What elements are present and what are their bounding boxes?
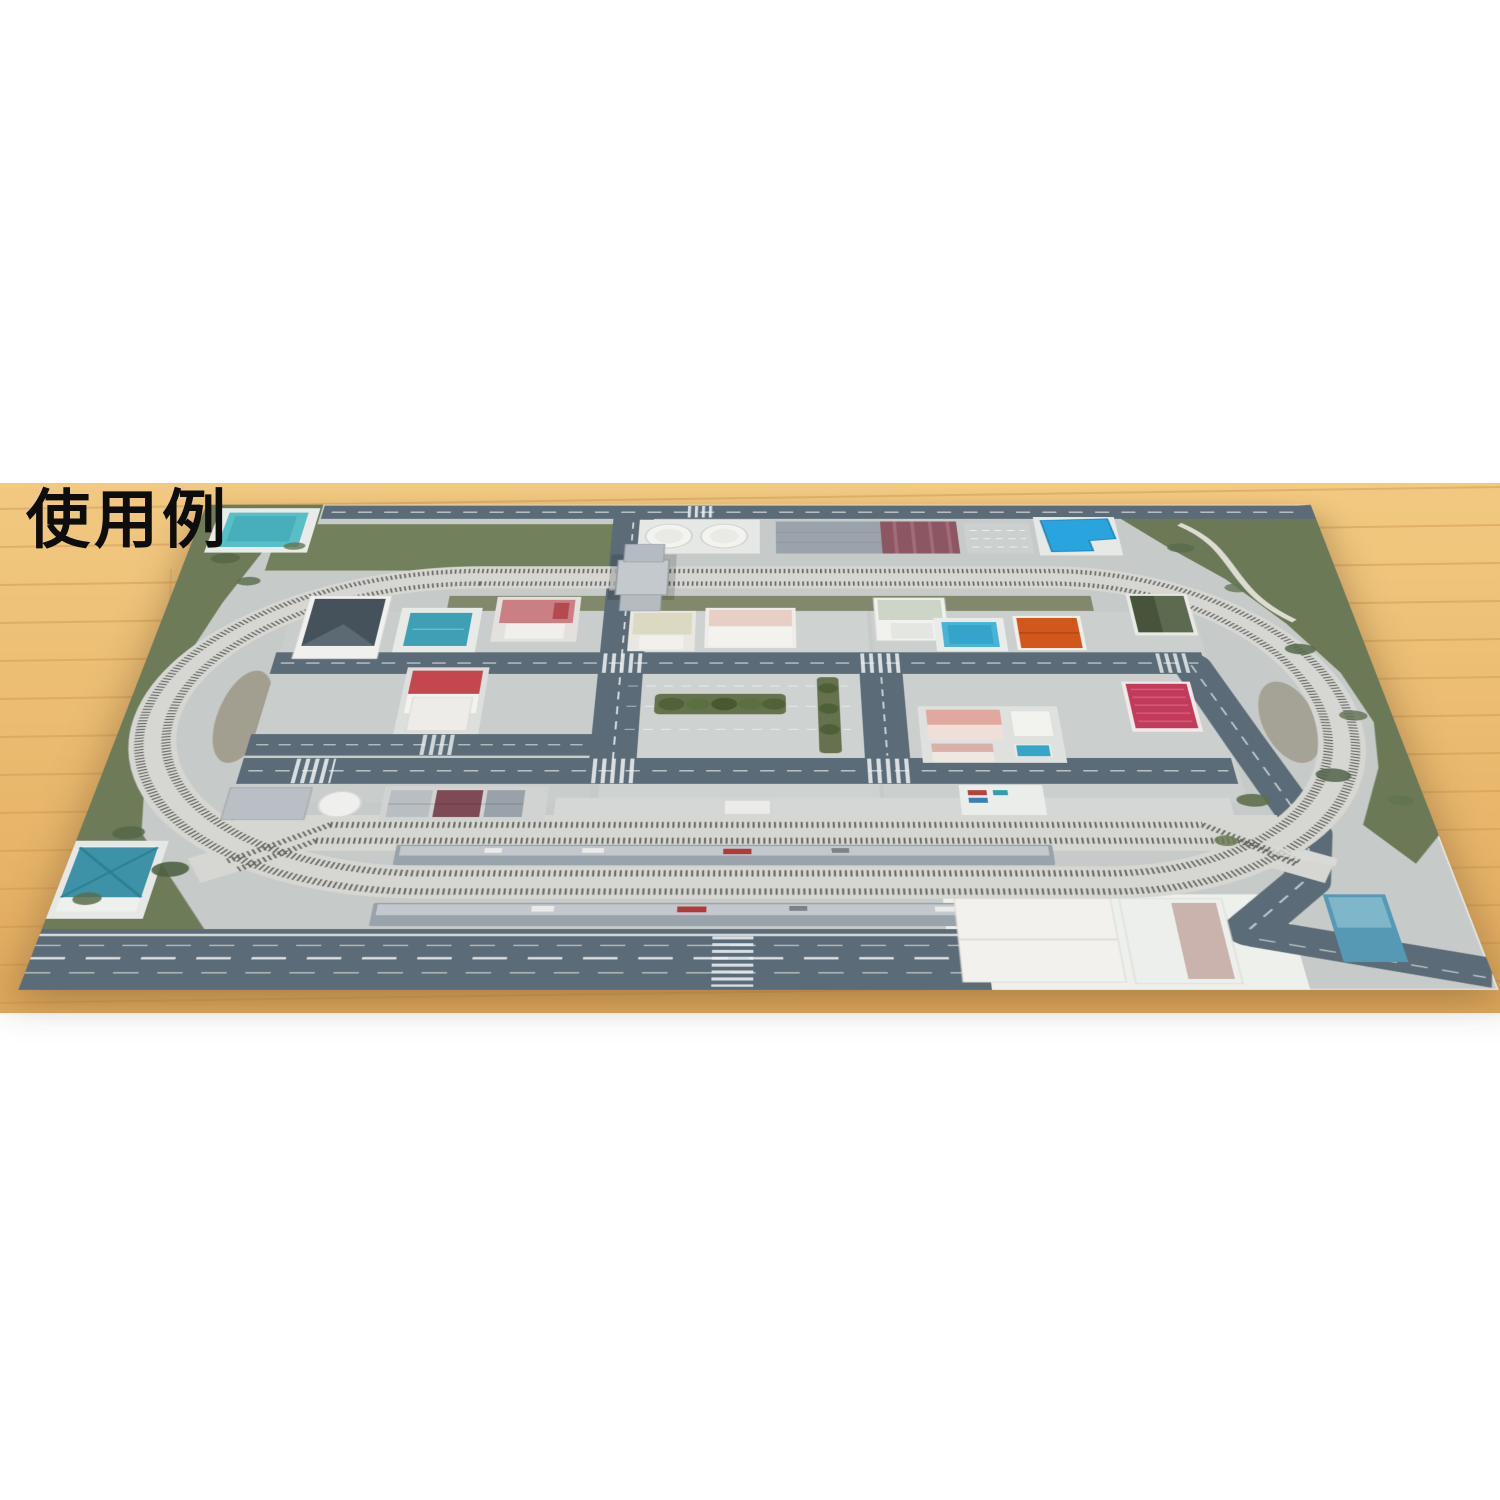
- bldg-long-white-roofN: [709, 610, 792, 626]
- bldg-cream-roof: [632, 613, 692, 635]
- pool-small: [1015, 745, 1052, 757]
- bldg-redroof-canopy: [406, 697, 473, 730]
- bldg-redroof-top: [408, 671, 483, 694]
- usage-example-label: 使用例: [26, 486, 230, 556]
- platform-bench: [723, 849, 751, 854]
- layout-mat: [18, 505, 1498, 990]
- town-layout-scene: [18, 505, 1498, 990]
- platform-shelter: [789, 906, 807, 911]
- bldg-pink-accent: [552, 603, 569, 619]
- station-north-plaza: [554, 798, 1235, 816]
- platform-bench: [677, 907, 706, 913]
- container-teal: [993, 790, 1008, 795]
- platform-shelter: [484, 848, 502, 853]
- station-kiosk: [724, 800, 771, 814]
- tree: [738, 698, 762, 709]
- pool-rightblock-shade: [947, 625, 993, 644]
- house-pink-roof: [931, 744, 993, 752]
- product-photo: 使用例: [0, 0, 1500, 1500]
- footbridge-span: [615, 560, 669, 595]
- platform-shelter: [935, 907, 956, 912]
- bldg-blue-roof: [1328, 897, 1392, 927]
- bldg-pink-annex: [504, 624, 565, 639]
- road-bottom: [18, 929, 992, 990]
- container-red: [968, 790, 988, 795]
- footbridge-tower: [619, 595, 661, 611]
- platform-shelter: [832, 848, 850, 853]
- bldg-west-gray: [221, 788, 313, 820]
- warehouse-gray: [776, 522, 890, 554]
- house-pink-roof: [926, 710, 1002, 725]
- caption-text: 使用例: [26, 484, 230, 558]
- container-blue: [968, 798, 988, 803]
- platform-shelter: [531, 906, 554, 912]
- footbridge-tower: [624, 544, 665, 562]
- tree: [762, 698, 786, 709]
- bldg-cream-annex: [639, 635, 684, 649]
- bldg-mintroof-top: [877, 600, 943, 620]
- platform-shelter: [582, 848, 604, 853]
- bldg-long-white-roofS: [708, 627, 792, 646]
- pavilion-white: [1010, 711, 1055, 737]
- green-top-strip: [265, 524, 627, 570]
- bldg-mintroof-entry: [890, 623, 933, 639]
- pool-topleft-shade: [226, 516, 297, 541]
